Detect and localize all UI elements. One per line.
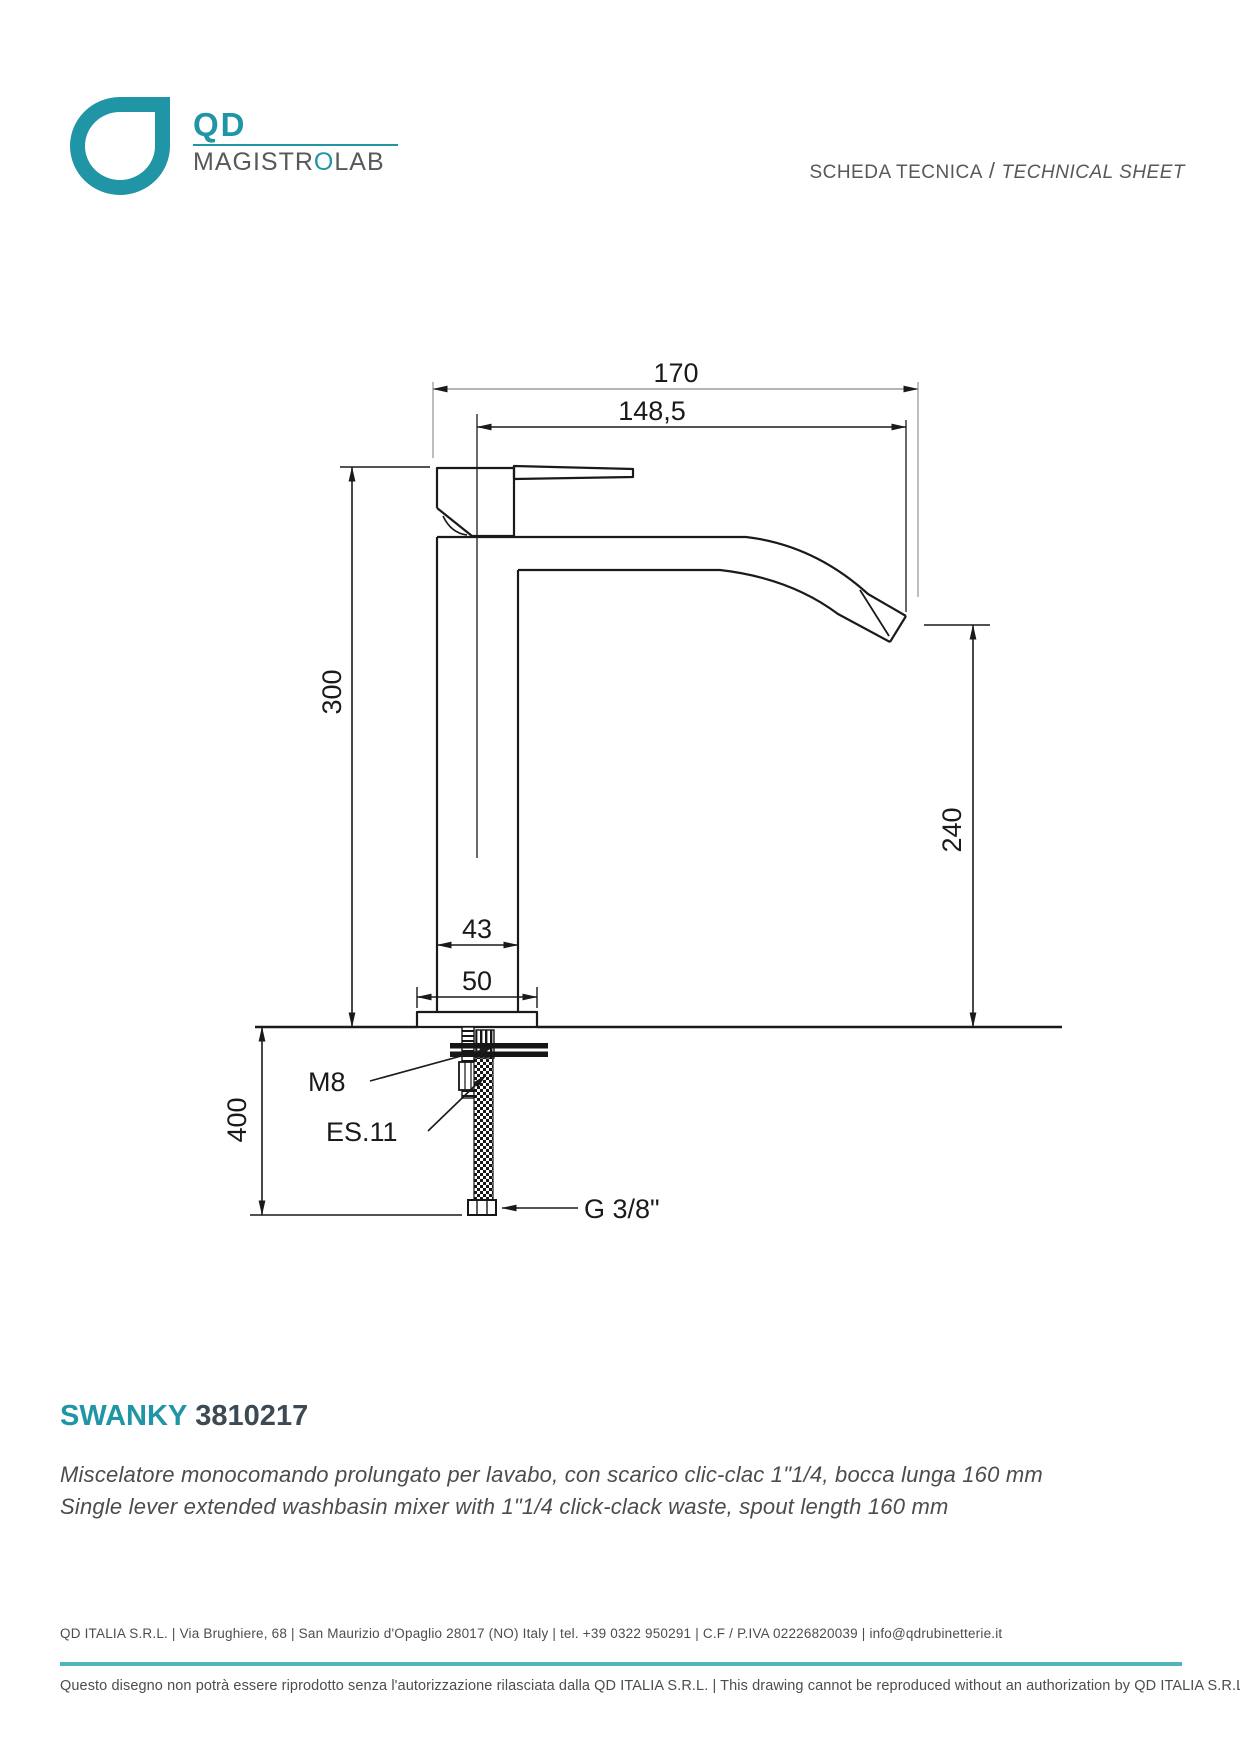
dim-240-value: 240 xyxy=(937,807,967,852)
dimension-43: 43 xyxy=(437,914,518,945)
washer-upper xyxy=(450,1043,548,1049)
dim-170-value: 170 xyxy=(653,358,698,388)
description-italian: Miscelatore monocomando prolungato per l… xyxy=(60,1462,1180,1488)
head-block-top xyxy=(437,468,514,508)
g38-label: G 3/8" xyxy=(584,1194,660,1224)
hose-end-fitting xyxy=(468,1200,496,1215)
lever-handle xyxy=(514,466,633,479)
footer-teal-rule xyxy=(60,1662,1182,1666)
es11-label: ES.11 xyxy=(326,1117,398,1147)
dimension-148-5: 148,5 xyxy=(477,396,906,612)
head-fillet-arc xyxy=(443,516,467,535)
dim-148-value: 148,5 xyxy=(618,396,686,426)
dim-148-extension-lines xyxy=(477,414,906,612)
faucet-outline xyxy=(255,466,1062,1027)
dimension-240: 240 xyxy=(924,625,990,1027)
product-name: SWANKY xyxy=(60,1400,187,1432)
footer-company-line: QD ITALIA S.R.L. | Via Brughiere, 68 | S… xyxy=(60,1626,1002,1641)
technical-drawing: 170 148,5 300 240 43 50 xyxy=(0,0,1240,1754)
dimension-170: 170 xyxy=(433,358,918,597)
spout-upper-edge xyxy=(437,537,906,616)
spout-end-cut xyxy=(890,616,906,642)
product-title: SWANKY3810217 xyxy=(60,1400,308,1433)
head-block-slant xyxy=(437,508,514,536)
dim-50-value: 50 xyxy=(462,966,492,996)
product-code: 3810217 xyxy=(187,1400,308,1432)
dim-300-value: 300 xyxy=(317,669,347,714)
label-g38: G 3/8" xyxy=(502,1194,660,1224)
dimension-300: 300 xyxy=(317,467,430,1027)
spout-lower-edge xyxy=(518,570,890,642)
description-english: Single lever extended washbasin mixer wi… xyxy=(60,1494,1180,1520)
m8-label: M8 xyxy=(308,1067,346,1097)
technical-sheet-page: QD MAGISTROLAB SCHEDA TECNICA/TECHNICAL … xyxy=(0,0,1240,1754)
footer-disclaimer: Questo disegno non potrà essere riprodot… xyxy=(60,1678,1240,1694)
dim-43-value: 43 xyxy=(462,914,492,944)
dim-400-value: 400 xyxy=(222,1097,252,1142)
base-plate xyxy=(417,1012,537,1027)
braided-hose xyxy=(474,1058,493,1202)
